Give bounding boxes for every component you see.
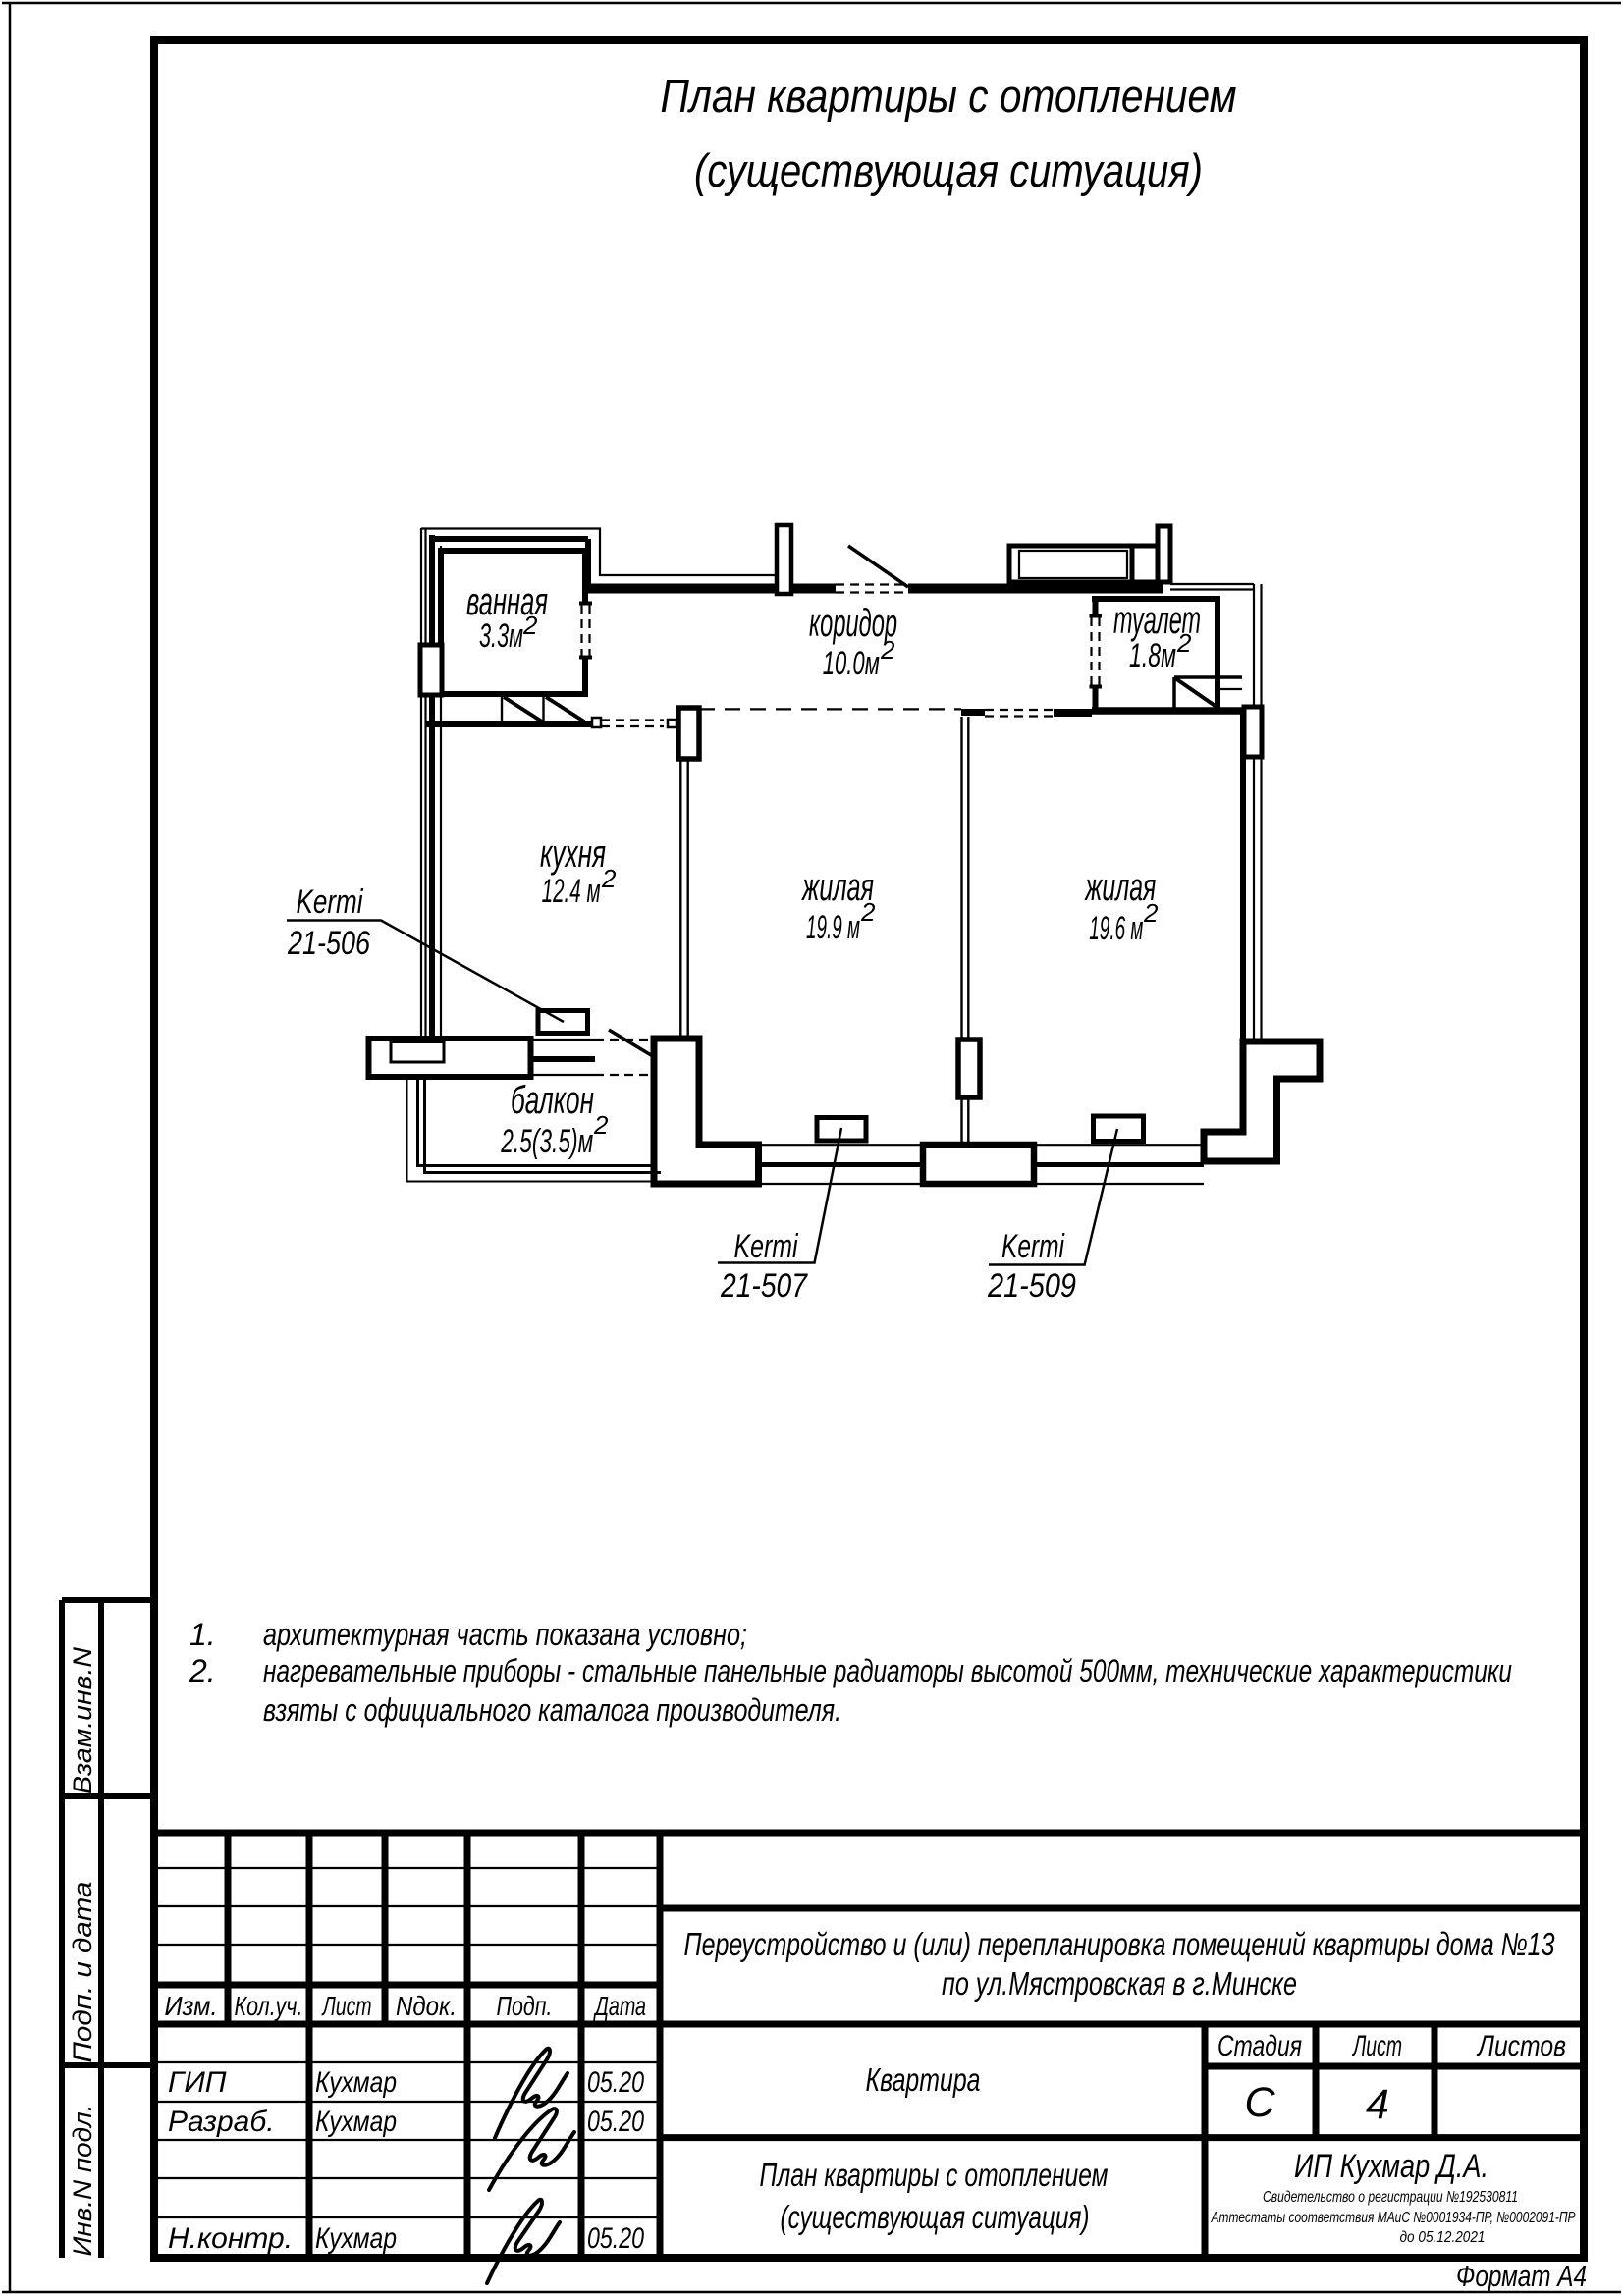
svg-text:05.20: 05.20 [587, 2222, 644, 2255]
svg-text:Kermi: Kermi [1001, 1228, 1065, 1265]
svg-text:19.6 м: 19.6 м [1089, 910, 1143, 947]
svg-text:2: 2 [601, 864, 617, 893]
svg-text:(существующая ситуация): (существующая ситуация) [781, 2199, 1090, 2235]
svg-text:Н.контр.: Н.контр. [168, 2222, 293, 2255]
svg-text:05.20: 05.20 [587, 2066, 644, 2099]
svg-text:Разраб.: Разраб. [168, 2106, 275, 2138]
svg-text:Кухмар: Кухмар [315, 2066, 397, 2099]
svg-text:кухня: кухня [540, 832, 606, 876]
svg-text:Подп. и дата: Подп. и дата [68, 1882, 97, 2063]
svg-text:1.: 1. [189, 1617, 216, 1652]
svg-text:Подп.: Подп. [497, 1991, 553, 2021]
svg-text:Лист: Лист [1352, 2030, 1402, 2062]
svg-text:10.0м: 10.0м [823, 645, 880, 682]
svg-text:Переустройство и (или) перепла: Переустройство и (или) перепланировка по… [684, 1926, 1555, 1962]
svg-text:Дата: Дата [593, 1991, 646, 2021]
svg-text:Kermi: Kermi [734, 1228, 799, 1265]
svg-text:Формат А4: Формат А4 [1456, 2259, 1587, 2293]
svg-text:балкон: балкон [511, 1079, 594, 1122]
svg-text:нагревательные приборы - сталь: нагревательные приборы - стальные панель… [263, 1653, 1512, 1688]
svg-text:Взам.инв.N: Взам.инв.N [68, 1646, 97, 1794]
svg-text:Лист: Лист [321, 1991, 371, 2021]
svg-text:2: 2 [522, 611, 538, 640]
svg-text:ИП Кухмар Д.А.: ИП Кухмар Д.А. [1294, 2148, 1488, 2185]
svg-text:2: 2 [880, 635, 895, 665]
svg-text:21-507: 21-507 [720, 1267, 808, 1305]
svg-text:1.8м: 1.8м [1129, 637, 1176, 674]
svg-text:2: 2 [860, 897, 876, 927]
svg-text:Аттестаты соответствия МАиС №0: Аттестаты соответствия МАиС №0001934-ПР,… [1211, 2210, 1576, 2226]
svg-text:Кол.уч.: Кол.уч. [235, 1991, 303, 2021]
svg-text:Кухмар: Кухмар [315, 2222, 397, 2255]
svg-text:Инв.N подл.: Инв.N подл. [68, 2105, 97, 2257]
svg-text:до 05.12.2021: до 05.12.2021 [1400, 2229, 1486, 2246]
svg-text:Стадия: Стадия [1217, 2030, 1302, 2062]
svg-text:21-509: 21-509 [987, 1267, 1076, 1305]
svg-text:С: С [1244, 2079, 1275, 2126]
svg-text:Кухмар: Кухмар [315, 2106, 397, 2138]
svg-text:Kermi: Kermi [297, 883, 364, 921]
svg-text:взяты с официального каталога: взяты с официального каталога производит… [263, 1692, 841, 1728]
svg-text:19.9 м: 19.9 м [806, 909, 860, 946]
svg-text:Свидетельство о регистрации №1: Свидетельство о регистрации №192530811 [1263, 2189, 1518, 2206]
svg-text:(существующая ситуация): (существующая ситуация) [694, 144, 1203, 196]
svg-text:21-506: 21-506 [287, 925, 370, 962]
svg-text:2.: 2. [189, 1653, 216, 1688]
svg-text:ГИП: ГИП [168, 2066, 227, 2099]
svg-text:План квартиры с отоплением: План квартиры с отоплением [760, 2157, 1109, 2193]
svg-text:План квартиры с отоплением: План квартиры с отоплением [661, 70, 1237, 122]
svg-text:4: 4 [1366, 2081, 1389, 2128]
svg-text:Nдок.: Nдок. [396, 1991, 457, 2021]
svg-text:2: 2 [1176, 628, 1192, 658]
svg-text:2: 2 [1143, 898, 1159, 928]
svg-text:Изм.: Изм. [165, 1991, 218, 2021]
svg-text:05.20: 05.20 [587, 2106, 644, 2138]
svg-text:по ул.Мястровская в г.Минске: по ул.Мястровская в г.Минске [942, 1965, 1297, 2002]
svg-text:3.3м: 3.3м [479, 617, 523, 655]
svg-text:архитектурная часть показана у: архитектурная часть показана условно; [263, 1617, 747, 1652]
svg-text:2: 2 [593, 1110, 609, 1140]
svg-text:2.5(3.5)м: 2.5(3.5)м [501, 1123, 594, 1160]
svg-text:12.4 м: 12.4 м [542, 873, 601, 910]
svg-text:Квартира: Квартира [866, 2061, 981, 2098]
svg-text:Листов: Листов [1476, 2030, 1566, 2062]
